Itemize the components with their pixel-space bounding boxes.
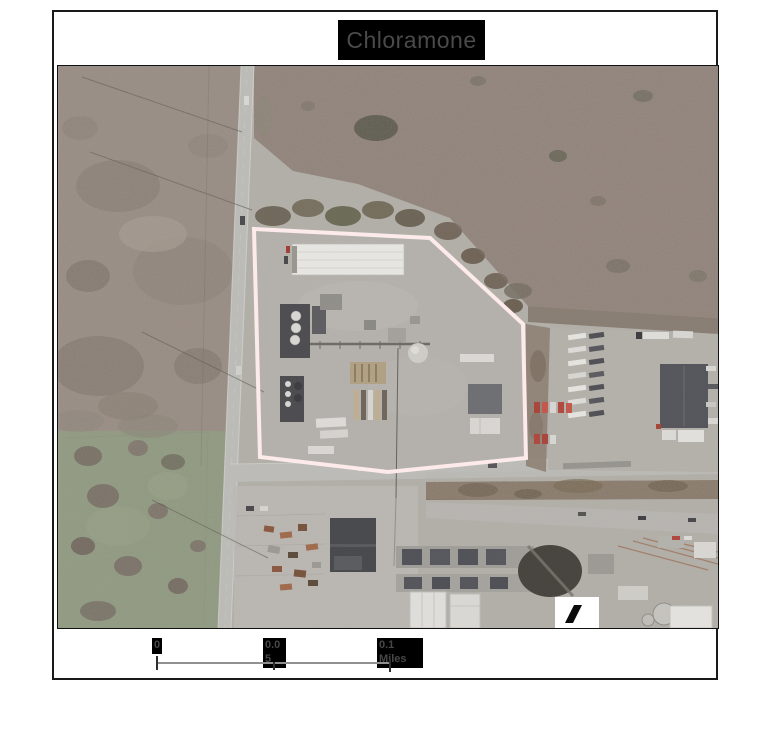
photo-grain: [58, 66, 718, 628]
map-frame: Chloramone: [52, 10, 718, 680]
aerial-photo-scene: [58, 66, 718, 628]
scale-label-zero: 0: [152, 638, 162, 654]
scale-tick-middle: [273, 662, 275, 670]
aerial-map: [57, 65, 719, 629]
scale-tick-left: [156, 656, 158, 670]
scale-tick-right: [389, 659, 391, 672]
north-arrow-icon: [555, 597, 599, 628]
map-title-text: Chloramone: [346, 27, 476, 54]
map-title: Chloramone: [338, 20, 485, 60]
